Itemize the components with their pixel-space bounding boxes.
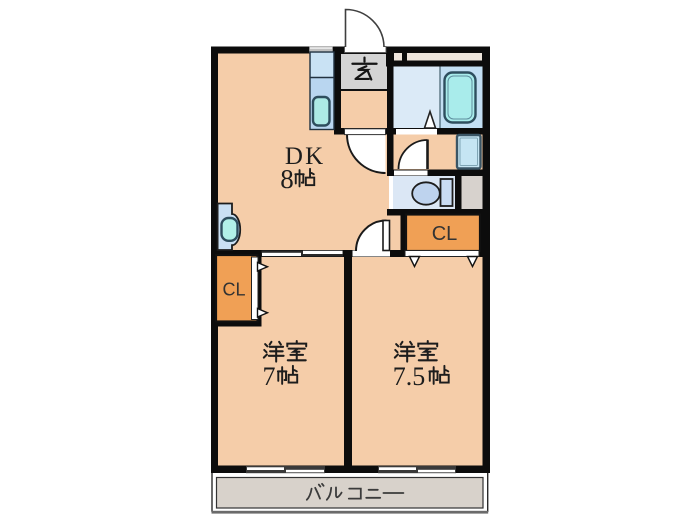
svg-text:8: 8: [280, 164, 294, 194]
svg-text:CL: CL: [432, 223, 458, 245]
svg-text:CL: CL: [222, 280, 245, 300]
svg-text:7: 7: [263, 362, 276, 391]
svg-text:7.5: 7.5: [393, 362, 426, 391]
